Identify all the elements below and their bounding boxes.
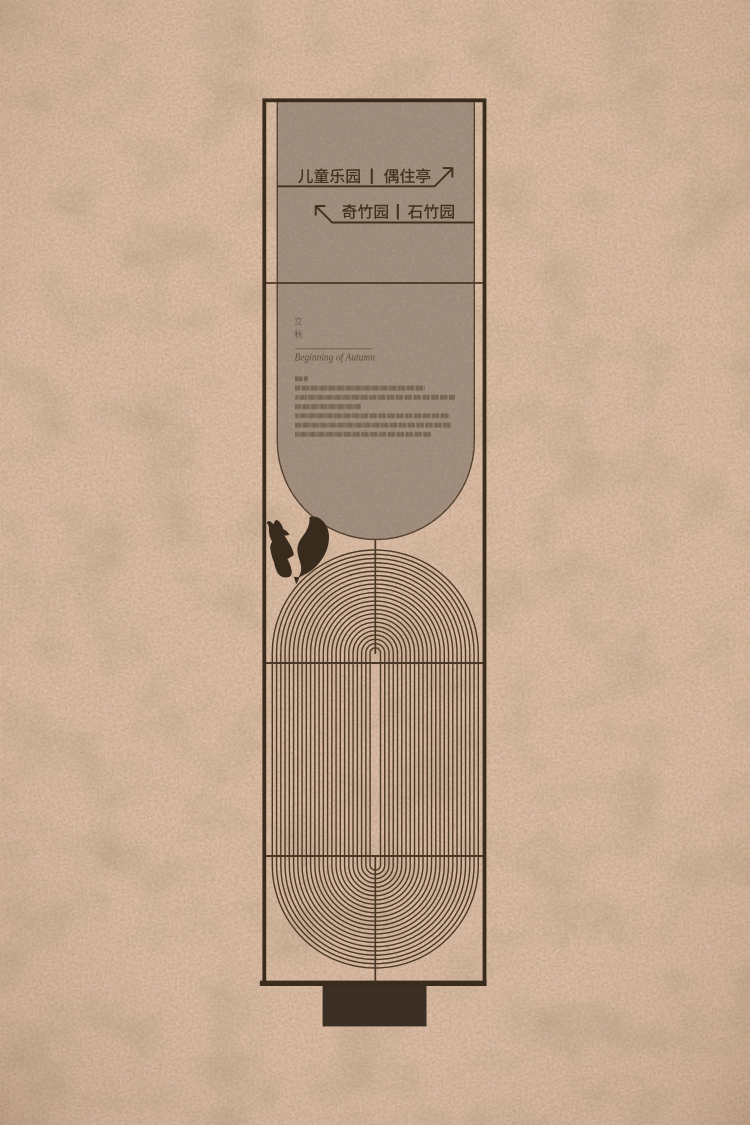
svg-text:Beginning of Autumn: Beginning of Autumn <box>295 352 376 364</box>
